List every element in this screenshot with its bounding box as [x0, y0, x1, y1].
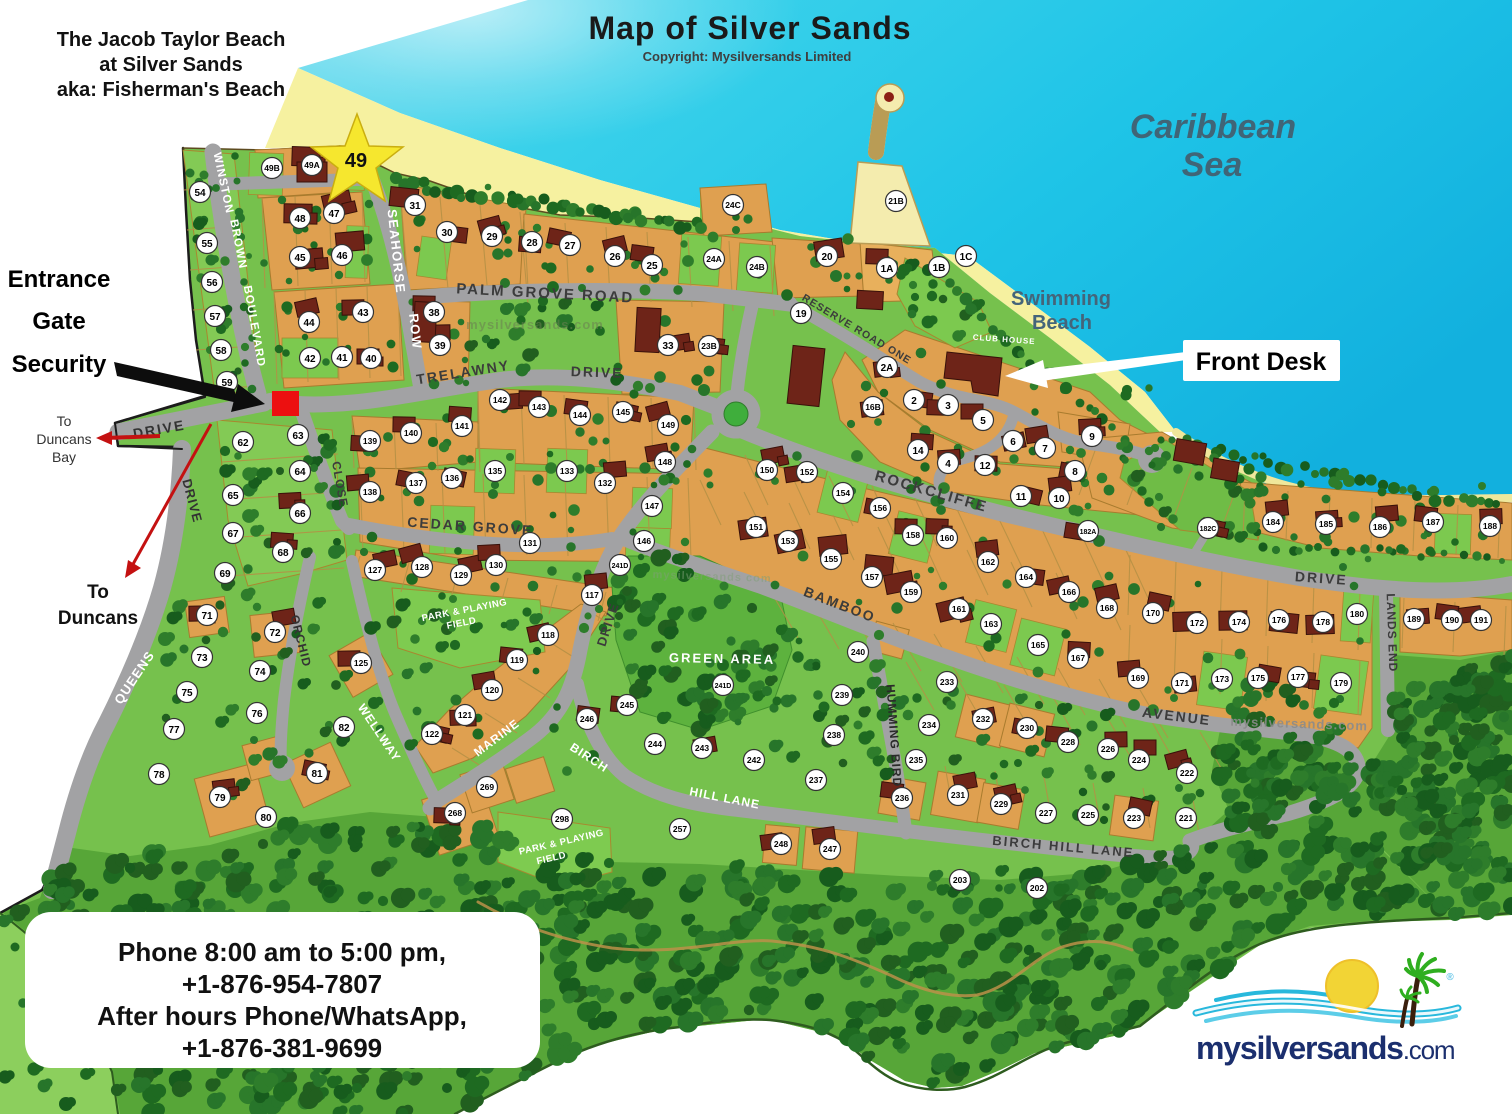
svg-text:11: 11 [1016, 492, 1027, 503]
svg-text:LANDS END: LANDS END [1384, 593, 1401, 672]
svg-text:191: 191 [1474, 615, 1488, 625]
svg-text:175: 175 [1251, 673, 1265, 683]
svg-text:24B: 24B [749, 262, 765, 272]
svg-text:160: 160 [940, 533, 954, 543]
svg-text:246: 246 [580, 714, 594, 724]
svg-text:10: 10 [1053, 494, 1065, 505]
svg-text:185: 185 [1319, 519, 1333, 529]
svg-text:62: 62 [237, 438, 249, 449]
svg-text:151: 151 [749, 522, 763, 532]
svg-text:231: 231 [951, 790, 965, 800]
svg-text:48: 48 [294, 214, 306, 225]
svg-text:142: 142 [493, 395, 507, 405]
svg-text:136: 136 [445, 473, 459, 483]
svg-text:247: 247 [823, 844, 837, 854]
svg-text:133: 133 [560, 466, 574, 476]
svg-text:47: 47 [328, 209, 340, 220]
svg-text:139: 139 [363, 436, 377, 446]
svg-text:mysilversands.com: mysilversands.com [1196, 1030, 1454, 1066]
svg-text:at Silver Sands: at Silver Sands [99, 54, 242, 76]
svg-text:203: 203 [953, 875, 967, 885]
svg-text:120: 120 [485, 685, 499, 695]
svg-text:20: 20 [821, 252, 833, 263]
svg-text:8: 8 [1072, 467, 1078, 478]
svg-text:44: 44 [303, 318, 315, 329]
svg-text:67: 67 [227, 529, 239, 540]
svg-text:121: 121 [458, 710, 472, 720]
svg-text:230: 230 [1020, 723, 1034, 733]
svg-text:131: 131 [523, 538, 537, 548]
svg-text:234: 234 [922, 720, 936, 730]
svg-text:74: 74 [254, 667, 266, 678]
svg-text:16B: 16B [865, 402, 881, 412]
svg-text:78: 78 [153, 770, 165, 781]
svg-text:The Jacob Taylor Beach: The Jacob Taylor Beach [57, 29, 286, 51]
svg-text:144: 144 [573, 410, 587, 420]
svg-text:Front Desk: Front Desk [1196, 348, 1327, 376]
svg-text:137: 137 [409, 478, 423, 488]
svg-text:145: 145 [616, 407, 630, 417]
svg-text:Sea: Sea [1182, 146, 1243, 184]
svg-text:29: 29 [486, 232, 498, 243]
svg-text:28: 28 [526, 238, 538, 249]
svg-text:77: 77 [168, 725, 180, 736]
svg-text:140: 140 [404, 428, 418, 438]
svg-text:71: 71 [201, 611, 213, 622]
svg-text:Caribbean: Caribbean [1130, 108, 1296, 146]
svg-text:180: 180 [1350, 609, 1364, 619]
svg-text:146: 146 [637, 536, 651, 546]
svg-text:248: 248 [774, 839, 788, 849]
svg-text:Security: Security [12, 351, 107, 378]
svg-text:241D: 241D [612, 563, 629, 570]
svg-text:153: 153 [781, 536, 795, 546]
svg-text:167: 167 [1071, 653, 1085, 663]
svg-text:152: 152 [800, 467, 814, 477]
svg-text:242: 242 [747, 755, 761, 765]
svg-text:244: 244 [648, 739, 662, 749]
svg-text:5: 5 [980, 416, 986, 427]
svg-text:43: 43 [357, 308, 369, 319]
svg-text:268: 268 [448, 808, 462, 818]
svg-text:232: 232 [976, 714, 990, 724]
svg-text:1B: 1B [933, 263, 946, 274]
svg-text:176: 176 [1272, 615, 1286, 625]
svg-text:171: 171 [1175, 678, 1189, 688]
svg-text:46: 46 [336, 251, 348, 262]
svg-text:12: 12 [979, 461, 991, 472]
svg-text:7: 7 [1042, 444, 1048, 455]
svg-text:221: 221 [1179, 813, 1193, 823]
svg-text:117: 117 [585, 590, 599, 600]
svg-text:mysilversands.com: mysilversands.com [466, 317, 604, 332]
svg-text:189: 189 [1407, 614, 1421, 624]
svg-text:257: 257 [673, 824, 687, 834]
svg-text:164: 164 [1019, 572, 1033, 582]
svg-text:Entrance: Entrance [8, 266, 111, 293]
svg-text:177: 177 [1291, 672, 1305, 682]
svg-text:58: 58 [215, 346, 227, 357]
svg-text:14: 14 [912, 446, 924, 457]
svg-text:Copyright: Mysilversands Limit: Copyright: Mysilversands Limited [643, 49, 852, 64]
svg-text:Map of Silver Sands: Map of Silver Sands [588, 10, 911, 46]
svg-text:149: 149 [661, 420, 675, 430]
svg-text:148: 148 [658, 457, 672, 467]
svg-text:80: 80 [260, 813, 272, 824]
svg-text:54: 54 [194, 188, 206, 199]
svg-text:125: 125 [354, 658, 368, 668]
svg-text:38: 38 [428, 308, 440, 319]
svg-text:4: 4 [945, 459, 951, 470]
svg-text:2A: 2A [881, 363, 894, 374]
svg-text:26: 26 [609, 252, 621, 263]
svg-text:222: 222 [1180, 768, 1194, 778]
svg-text:118: 118 [541, 630, 555, 640]
svg-text:155: 155 [824, 554, 838, 564]
svg-text:56: 56 [206, 278, 218, 289]
svg-text:39: 39 [434, 341, 446, 352]
svg-text:178: 178 [1316, 617, 1330, 627]
svg-text:GREEN AREA: GREEN AREA [669, 650, 775, 667]
svg-text:72: 72 [269, 628, 281, 639]
svg-text:DRIVE: DRIVE [571, 363, 624, 381]
svg-text:+1-876-381-9699: +1-876-381-9699 [182, 1033, 382, 1063]
svg-text:1A: 1A [881, 264, 894, 275]
svg-text:223: 223 [1127, 813, 1141, 823]
svg-text:Phone 8:00 am to 5:00 pm,: Phone 8:00 am to 5:00 pm, [118, 937, 446, 967]
svg-text:55: 55 [201, 239, 213, 250]
svg-text:23B: 23B [701, 341, 717, 351]
svg-text:182C: 182C [1200, 526, 1217, 533]
svg-text:Duncans: Duncans [36, 431, 91, 447]
svg-text:40: 40 [365, 354, 377, 365]
svg-text:186: 186 [1373, 522, 1387, 532]
svg-text:128: 128 [415, 562, 429, 572]
svg-text:65: 65 [227, 491, 239, 502]
svg-text:170: 170 [1146, 608, 1160, 618]
svg-text:To: To [87, 582, 109, 603]
svg-text:157: 157 [865, 572, 879, 582]
svg-text:®: ® [1446, 972, 1454, 983]
svg-text:33: 33 [662, 341, 674, 352]
svg-text:188: 188 [1483, 521, 1497, 531]
svg-text:+1-876-954-7807: +1-876-954-7807 [182, 969, 382, 999]
svg-text:154: 154 [836, 488, 850, 498]
svg-text:132: 132 [598, 478, 612, 488]
svg-text:138: 138 [363, 487, 377, 497]
svg-text:3: 3 [945, 401, 951, 412]
svg-text:235: 235 [909, 755, 923, 765]
svg-text:184: 184 [1266, 517, 1280, 527]
svg-text:27: 27 [564, 241, 576, 252]
svg-text:237: 237 [809, 775, 823, 785]
svg-text:19: 19 [795, 309, 807, 320]
svg-text:6: 6 [1010, 437, 1016, 448]
svg-text:187: 187 [1426, 517, 1440, 527]
svg-text:174: 174 [1232, 617, 1246, 627]
svg-text:30: 30 [441, 228, 453, 239]
svg-text:141: 141 [455, 421, 469, 431]
svg-text:228: 228 [1061, 737, 1075, 747]
svg-text:81: 81 [311, 769, 323, 780]
svg-text:127: 127 [368, 565, 382, 575]
svg-text:Beach: Beach [1032, 312, 1092, 334]
svg-text:269: 269 [480, 782, 494, 792]
svg-text:Duncans: Duncans [58, 608, 138, 629]
svg-text:224: 224 [1132, 755, 1146, 765]
svg-text:202: 202 [1030, 883, 1044, 893]
svg-text:69: 69 [219, 569, 231, 580]
svg-text:76: 76 [251, 709, 263, 720]
svg-text:168: 168 [1100, 603, 1114, 613]
svg-text:233: 233 [940, 677, 954, 687]
svg-text:82: 82 [338, 723, 350, 734]
svg-text:66: 66 [294, 509, 306, 520]
svg-text:Bay: Bay [52, 449, 76, 465]
svg-text:241D: 241D [715, 683, 732, 690]
svg-text:165: 165 [1031, 640, 1045, 650]
svg-text:25: 25 [646, 261, 658, 272]
svg-text:Swimming: Swimming [1011, 288, 1111, 310]
svg-text:179: 179 [1334, 678, 1348, 688]
svg-text:24C: 24C [725, 200, 741, 210]
svg-text:147: 147 [645, 501, 659, 511]
svg-text:2: 2 [911, 396, 917, 407]
svg-text:229: 229 [994, 799, 1008, 809]
svg-text:129: 129 [454, 570, 468, 580]
svg-text:163: 163 [984, 619, 998, 629]
svg-text:49A: 49A [304, 160, 320, 170]
svg-text:238: 238 [827, 730, 841, 740]
svg-text:227: 227 [1039, 808, 1053, 818]
svg-text:75: 75 [181, 688, 193, 699]
svg-text:24A: 24A [706, 254, 722, 264]
svg-text:240: 240 [851, 647, 865, 657]
svg-text:To: To [57, 413, 72, 429]
svg-text:226: 226 [1101, 744, 1115, 754]
svg-text:1C: 1C [960, 252, 973, 263]
svg-text:172: 172 [1190, 618, 1204, 628]
svg-text:162: 162 [981, 557, 995, 567]
svg-text:182A: 182A [1080, 529, 1097, 536]
svg-text:Gate: Gate [32, 308, 85, 335]
svg-text:31: 31 [409, 201, 421, 212]
svg-text:161: 161 [952, 604, 966, 614]
svg-text:42: 42 [304, 354, 316, 365]
svg-text:73: 73 [196, 653, 208, 664]
svg-text:166: 166 [1062, 587, 1076, 597]
svg-text:245: 245 [620, 700, 634, 710]
svg-text:79: 79 [214, 793, 226, 804]
svg-text:57: 57 [209, 312, 221, 323]
svg-text:130: 130 [489, 560, 503, 570]
svg-text:9: 9 [1089, 432, 1095, 443]
svg-text:173: 173 [1215, 674, 1229, 684]
svg-text:158: 158 [906, 530, 920, 540]
svg-text:135: 135 [488, 466, 502, 476]
svg-text:169: 169 [1131, 673, 1145, 683]
svg-text:143: 143 [532, 402, 546, 412]
svg-text:225: 225 [1081, 810, 1095, 820]
svg-text:21B: 21B [888, 196, 904, 206]
svg-text:119: 119 [510, 655, 524, 665]
svg-text:156: 156 [873, 503, 887, 513]
svg-text:45: 45 [294, 253, 306, 264]
svg-text:298: 298 [555, 814, 569, 824]
svg-text:122: 122 [425, 729, 439, 739]
svg-text:49: 49 [345, 150, 367, 172]
svg-text:68: 68 [277, 548, 289, 559]
svg-text:64: 64 [294, 467, 306, 478]
svg-text:aka: Fisherman's Beach: aka: Fisherman's Beach [57, 79, 285, 101]
svg-text:41: 41 [336, 353, 348, 364]
svg-text:159: 159 [904, 587, 918, 597]
svg-text:150: 150 [760, 465, 774, 475]
svg-text:236: 236 [895, 793, 909, 803]
svg-text:After hours Phone/WhatsApp,: After hours Phone/WhatsApp, [97, 1001, 467, 1031]
svg-text:63: 63 [292, 431, 304, 442]
svg-text:243: 243 [695, 743, 709, 753]
svg-text:49B: 49B [264, 163, 280, 173]
svg-text:239: 239 [835, 690, 849, 700]
svg-text:190: 190 [1445, 615, 1459, 625]
